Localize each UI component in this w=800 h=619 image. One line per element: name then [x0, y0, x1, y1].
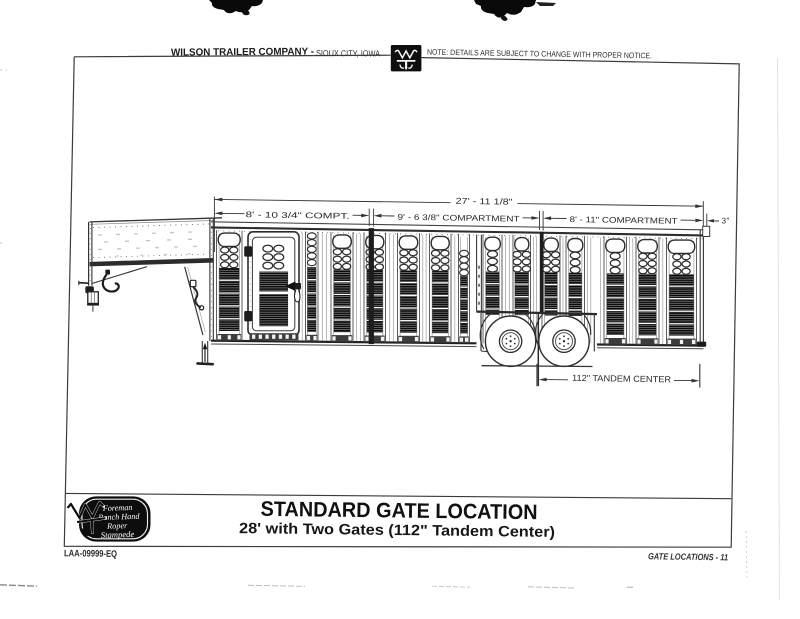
- svg-text:9' - 6 3/8" COMPARTMENT: 9' - 6 3/8" COMPARTMENT: [397, 213, 519, 224]
- svg-text:SIOUX CITY, IOWA: SIOUX CITY, IOWA: [316, 48, 380, 59]
- svg-text:8' - 11" COMPARTMENT: 8' - 11" COMPARTMENT: [569, 215, 677, 226]
- svg-text:3": 3": [721, 216, 729, 225]
- svg-text:8' - 10 3/4" COMPT.: 8' - 10 3/4" COMPT.: [245, 210, 349, 221]
- svg-text:GATE LOCATIONS - 11: GATE LOCATIONS - 11: [648, 551, 728, 562]
- svg-text:27' - 11 1/8": 27' - 11 1/8": [455, 196, 512, 207]
- svg-text:Stampede: Stampede: [101, 529, 135, 540]
- svg-text:WILSON TRAILER COMPANY -: WILSON TRAILER COMPANY -: [171, 47, 314, 59]
- svg-text:LAA-09999-EQ: LAA-09999-EQ: [64, 548, 117, 560]
- svg-text:112" TANDEM CENTER: 112" TANDEM CENTER: [572, 373, 671, 385]
